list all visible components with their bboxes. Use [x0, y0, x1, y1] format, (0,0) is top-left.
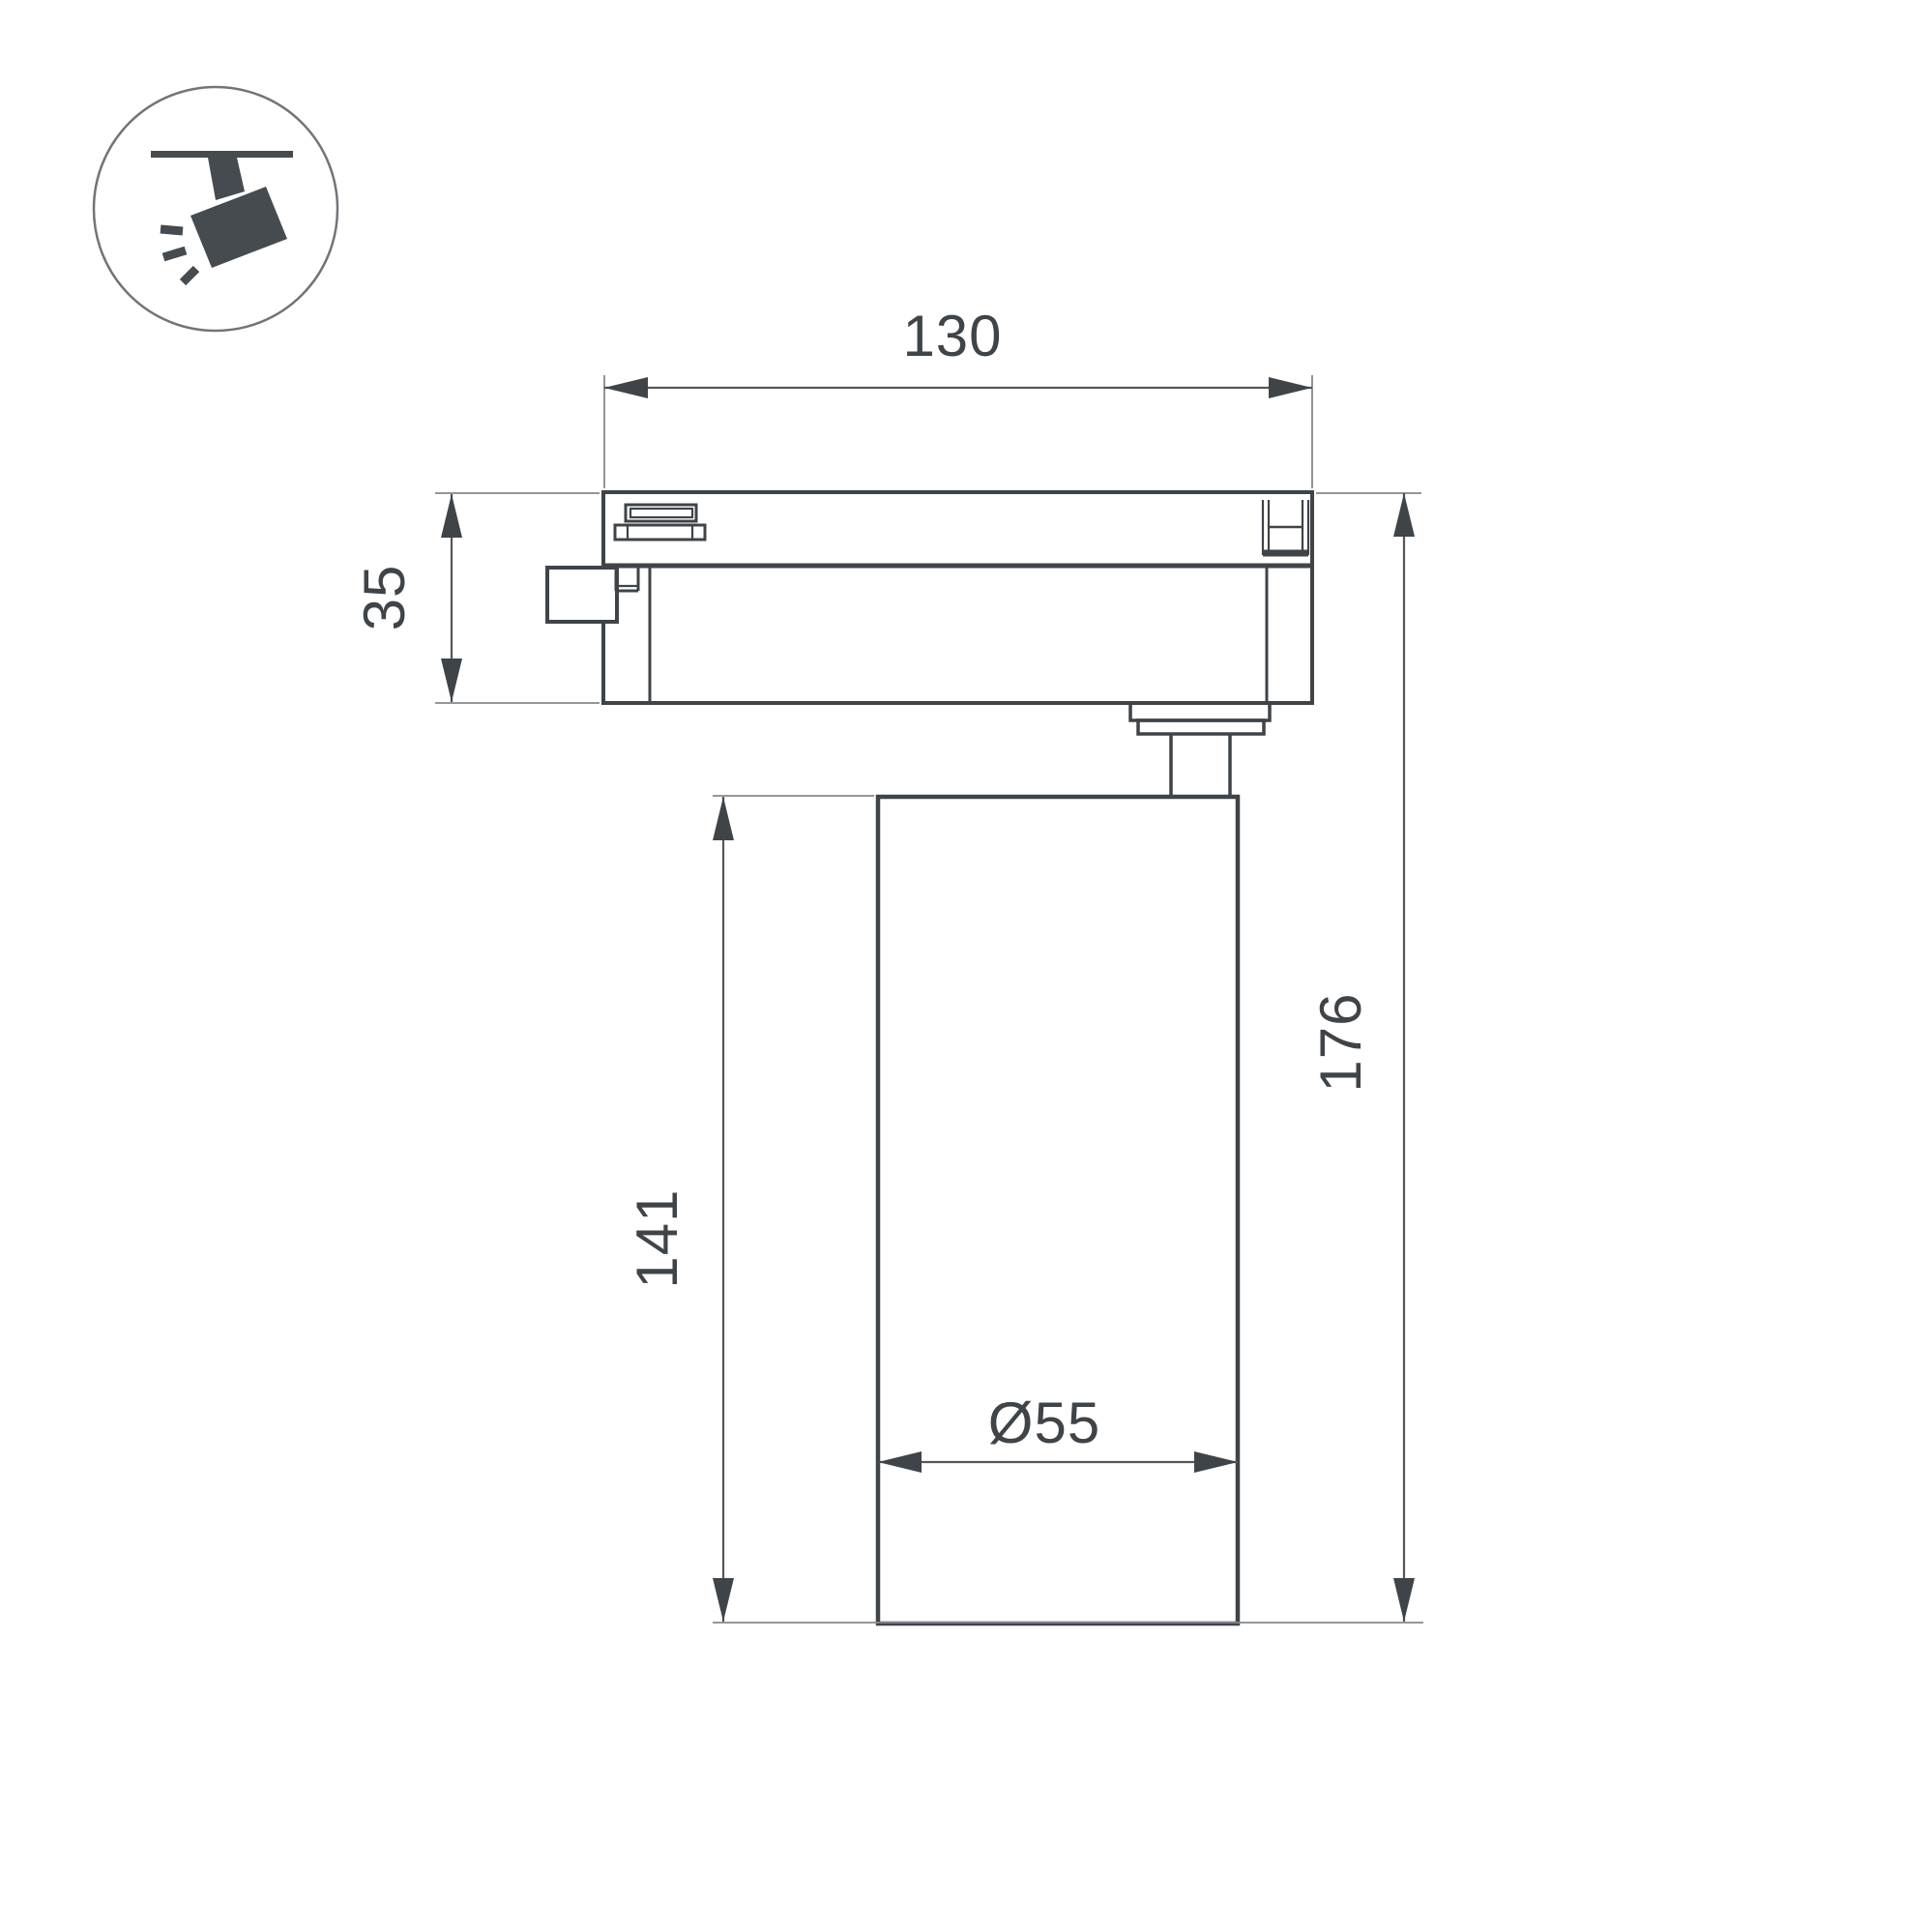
dim-diameter-label: Ø55: [988, 1390, 1100, 1455]
latch-hook: [616, 568, 638, 591]
arrowhead-left: [878, 1451, 922, 1473]
dim-total-height-label: 176: [1308, 992, 1373, 1092]
dim-track-height-label: 35: [352, 565, 417, 631]
neck-step-2: [1138, 720, 1264, 734]
arrowhead-right: [1194, 1451, 1238, 1473]
dim-track-length: 130: [604, 304, 1312, 488]
arrowhead-up: [441, 494, 462, 538]
dim-body-height-label: 141: [625, 1188, 689, 1288]
swivel-neck: [1130, 703, 1270, 795]
dim-track-length-label: 130: [902, 304, 1002, 368]
arrowhead-up: [1393, 493, 1415, 537]
dim-diameter: Ø55: [878, 1390, 1238, 1473]
contact-clip-upper: [626, 505, 696, 521]
adapter-housing: [603, 566, 1312, 703]
arrowhead-down: [441, 659, 462, 702]
arrowhead-up: [713, 797, 734, 840]
arrowhead-down: [713, 1578, 734, 1622]
dim-body-height: 141: [625, 796, 874, 1622]
track-spotlight-icon: [94, 87, 337, 331]
arrowhead-down: [1393, 1578, 1415, 1622]
contact-clip-lower: [615, 525, 705, 540]
arrowhead-left: [604, 377, 648, 398]
adapter-top-section: [603, 492, 1312, 566]
arrowhead-right: [1269, 377, 1312, 398]
technical-drawing: 130 35 141 176 Ø55: [0, 0, 1932, 1932]
dimension-drawing-page: 130 35 141 176 Ø55: [0, 0, 1932, 1932]
neck-step-1: [1130, 703, 1270, 720]
icon-track-bar: [151, 151, 293, 158]
track-adapter: [547, 492, 1312, 703]
adapter-u-clip: [1263, 500, 1308, 555]
lamp-cylinder: [878, 797, 1238, 1624]
adapter-latch: [547, 568, 617, 622]
